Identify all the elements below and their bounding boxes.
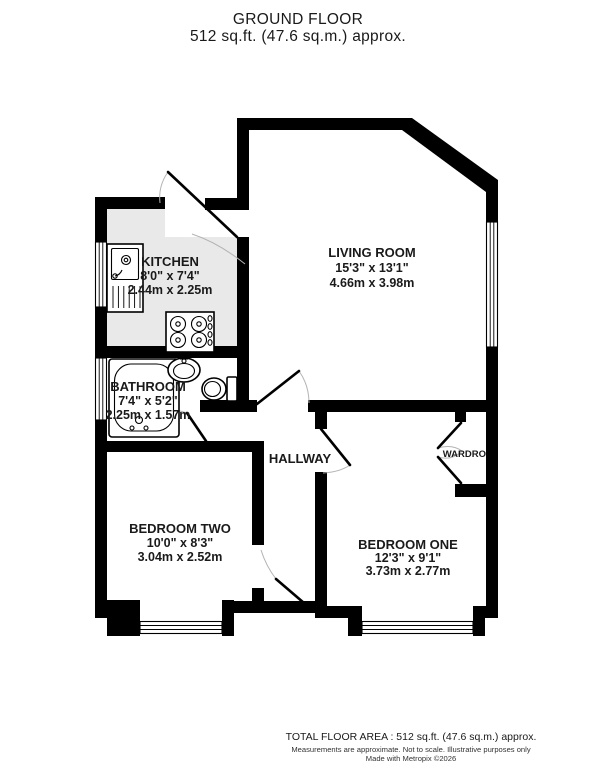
kitchen-sink-icon [107, 244, 143, 312]
hob-icon [166, 312, 214, 352]
living-room-imperial: 15'3" x 13'1" [335, 261, 408, 275]
kitchen-imperial: 8'0" x 7'4" [140, 269, 200, 283]
ground-floor-title: GROUND FLOOR [233, 11, 363, 28]
kitchen-metric: 2.44m x 2.25m [128, 283, 213, 297]
bedroom-one-name: BEDROOM ONE [358, 537, 458, 552]
wardrobe-label: WARDRO [443, 449, 486, 460]
bedroom-one-metric: 3.73m x 2.77m [366, 564, 451, 578]
bedroom-two-metric: 3.04m x 2.52m [138, 550, 223, 564]
bathroom-metric: 2.25m x 1.57m [106, 408, 191, 422]
bedroom-two-imperial: 10'0" x 8'3" [147, 536, 214, 550]
kitchen-name: KITCHEN [141, 254, 199, 269]
toilet-icon [202, 377, 237, 401]
floor-plan-page: GROUND FLOOR 512 sq.ft. (47.6 sq.m.) app… [0, 0, 600, 782]
living-room-name: LIVING ROOM [328, 245, 415, 260]
hallway-label: HALLWAY [269, 451, 332, 466]
bedroom-one-imperial: 12'3" x 9'1" [375, 551, 442, 565]
living-room-metric: 4.66m x 3.98m [330, 276, 415, 290]
window-bedroom-two [140, 622, 222, 634]
window-bedroom-one [362, 622, 473, 634]
bedroom-two-name: BEDROOM TWO [129, 521, 231, 536]
bedroom-two-label: BEDROOM TWO 10'0" x 8'3" 3.04m x 2.52m [129, 521, 231, 564]
bathroom-label: BATHROOM 7'4" x 5'2" 2.25m x 1.57m [106, 379, 191, 422]
bathroom-imperial: 7'4" x 5'2" [118, 394, 178, 408]
living-room-label: LIVING ROOM 15'3" x 13'1" 4.66m x 3.98m [328, 245, 415, 290]
floor-area-subtitle: 512 sq.ft. (47.6 sq.m.) approx. [190, 28, 406, 45]
footer: TOTAL FLOOR AREA : 512 sq.ft. (47.6 sq.m… [286, 731, 537, 763]
window-living-room [487, 222, 498, 347]
bedroom-one-label: BEDROOM ONE 12'3" x 9'1" 3.73m x 2.77m [358, 537, 458, 578]
living-room-door [257, 371, 309, 404]
disclaimer: Measurements are approximate. Not to sca… [291, 745, 531, 754]
window-kitchen [96, 242, 107, 307]
total-floor-area: TOTAL FLOOR AREA : 512 sq.ft. (47.6 sq.m… [286, 731, 537, 743]
bathroom-name: BATHROOM [110, 379, 186, 394]
bedroom-two-door [261, 550, 311, 609]
credit: Made with Metropix ©2026 [366, 754, 456, 763]
floor-plan: GROUND FLOOR 512 sq.ft. (47.6 sq.m.) app… [0, 0, 600, 782]
